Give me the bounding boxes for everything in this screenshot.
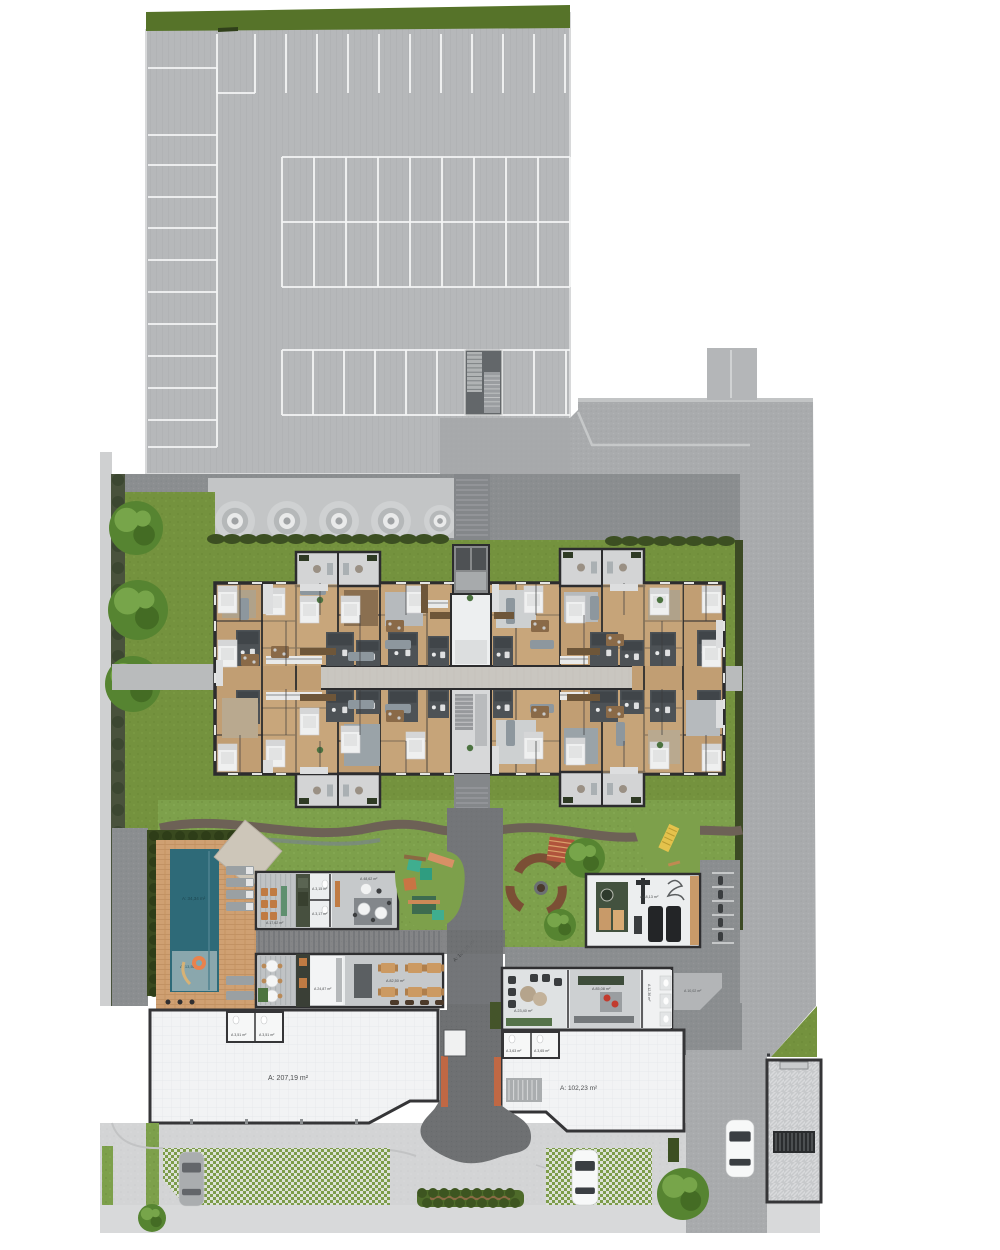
svg-text:A 48,13 m²: A 48,13 m² [640,895,659,899]
svg-text:A 3,65 m²: A 3,65 m² [534,1049,550,1053]
svg-text:A: 207,19 m²: A: 207,19 m² [268,1075,309,1082]
svg-text:A 3,15 m²: A 3,15 m² [312,887,328,891]
svg-text:A 24,87 m²: A 24,87 m² [314,987,332,991]
svg-text:A 3,51 m²: A 3,51 m² [259,1033,275,1037]
svg-text:A 23,40 m²: A 23,40 m² [514,1009,533,1013]
svg-text:A 12,36 m²: A 12,36 m² [647,984,651,1002]
svg-text:A: 34,34 m²: A: 34,34 m² [182,896,206,901]
svg-text:A 17,62 m²: A 17,62 m² [266,921,284,925]
svg-text:A 3,17 m²: A 3,17 m² [312,912,328,916]
svg-text:A 48,62 m²: A 48,62 m² [360,877,378,881]
svg-text:A: 102,23 m²: A: 102,23 m² [560,1085,598,1092]
svg-text:A 3,63 m²: A 3,63 m² [506,1049,522,1053]
svg-text:A 82,50 m²: A 82,50 m² [386,979,405,983]
svg-text:A 10,02 m²: A 10,02 m² [684,989,702,993]
svg-text:A 85,08 m²: A 85,08 m² [592,987,611,991]
svg-text:A 3,51 m²: A 3,51 m² [231,1033,247,1037]
